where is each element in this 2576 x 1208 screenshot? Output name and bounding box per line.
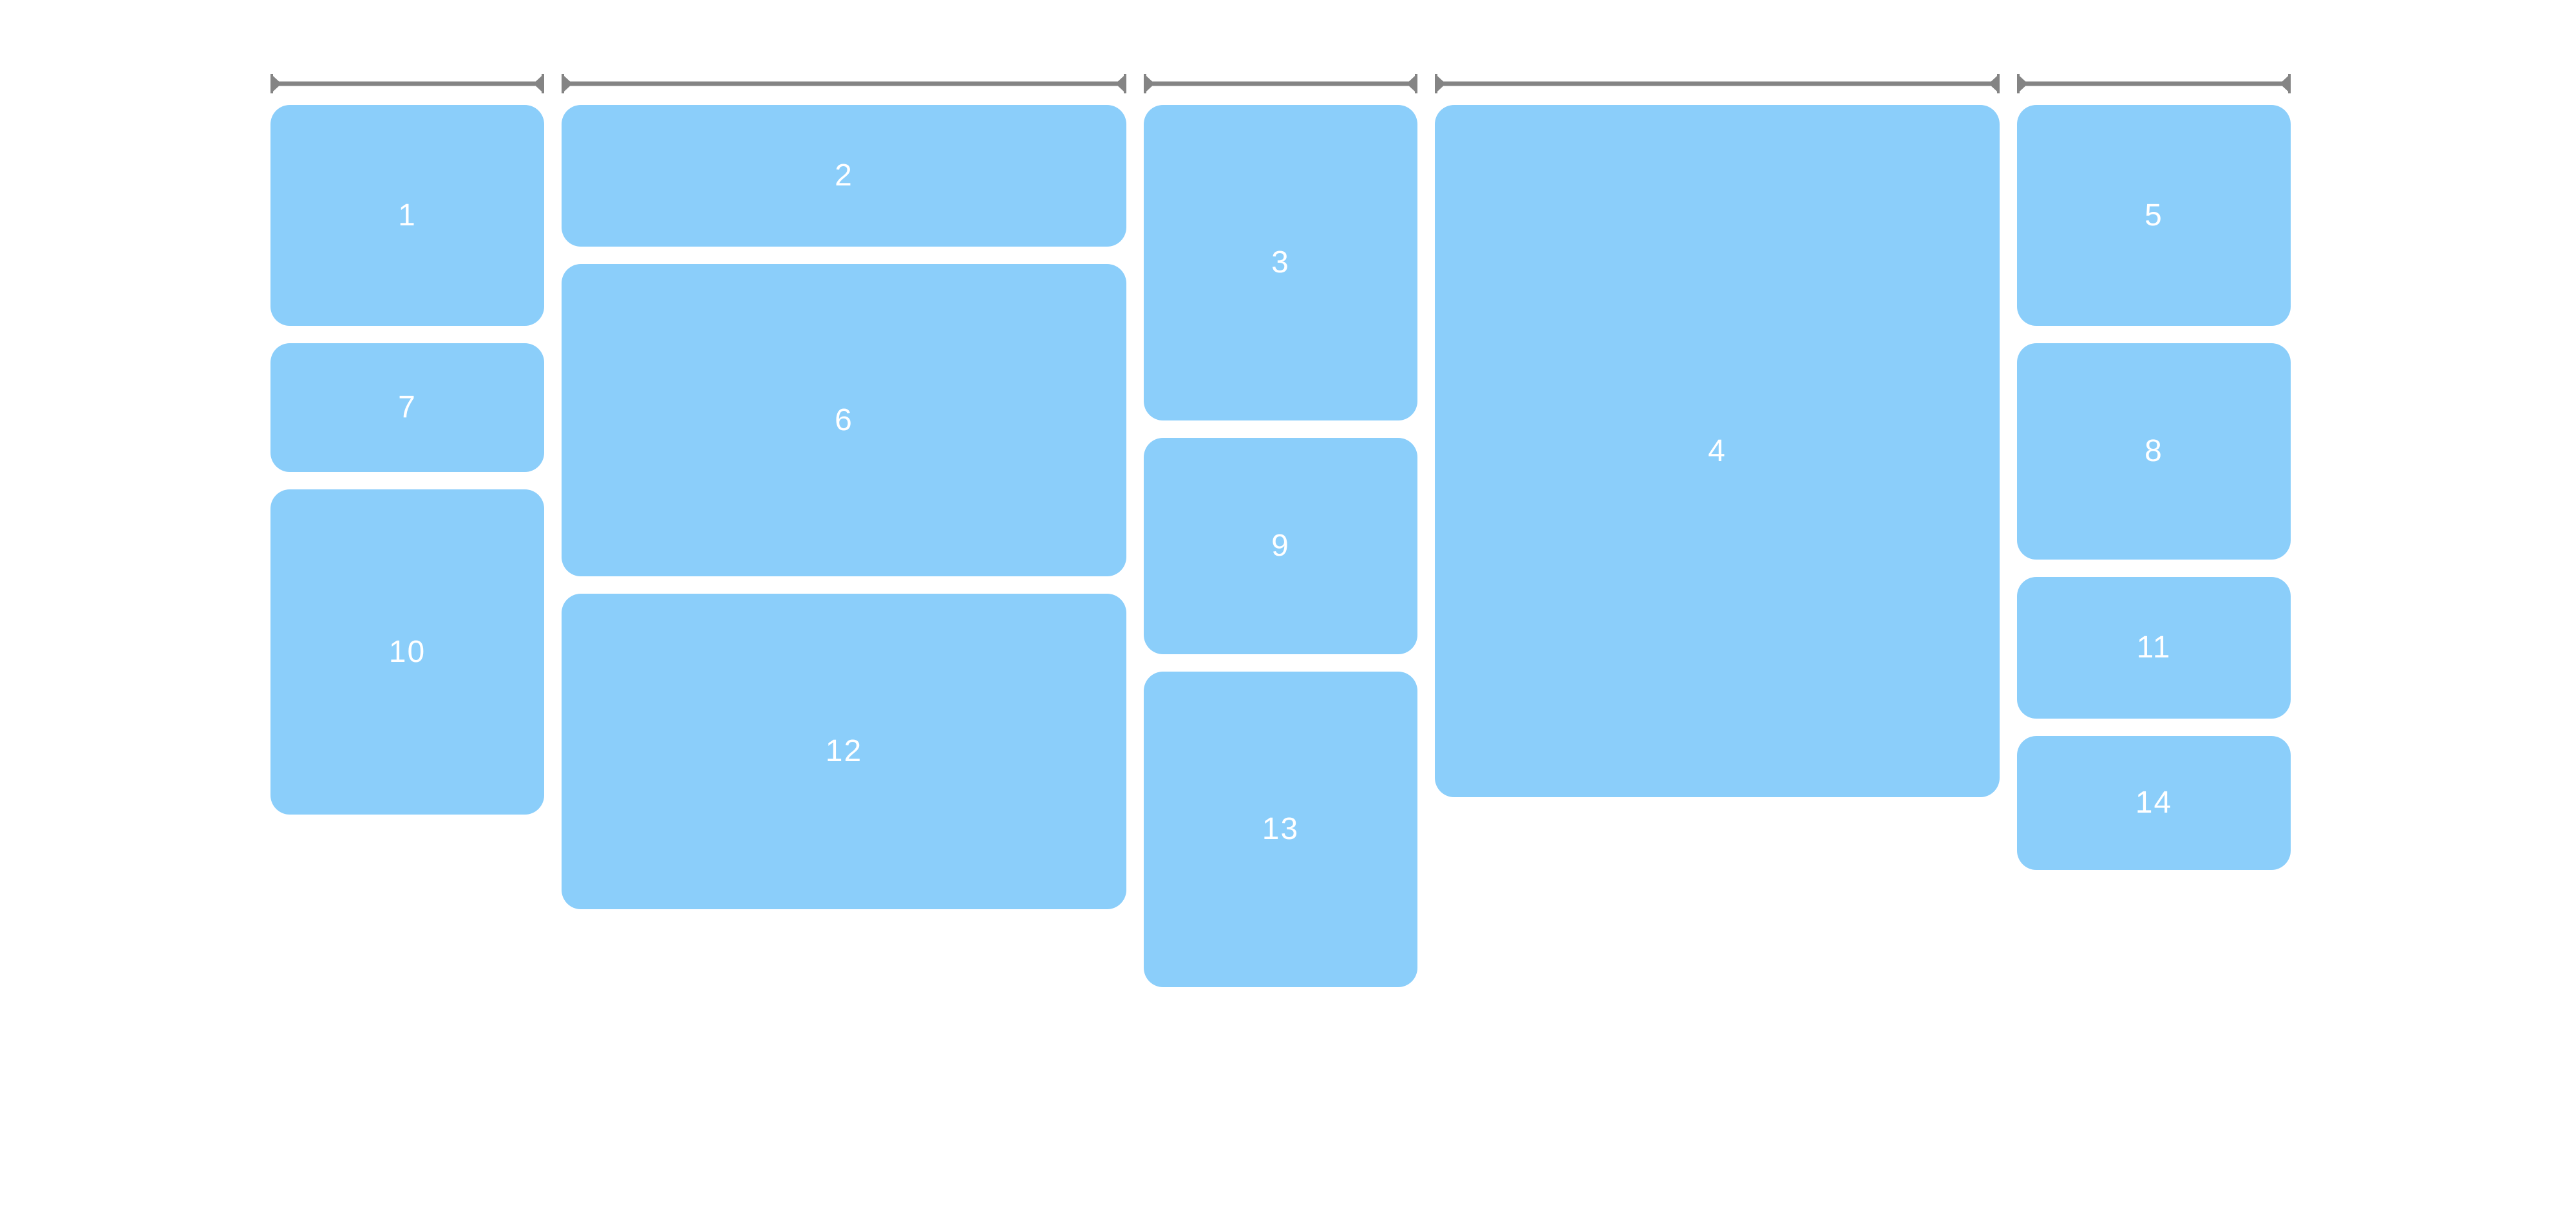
item-number: 6 bbox=[835, 405, 853, 436]
column-item-stack: 4 bbox=[1435, 105, 2000, 797]
item-number: 3 bbox=[1271, 247, 1290, 278]
right-end-tick bbox=[1124, 74, 1126, 93]
masonry-item-6: 6 bbox=[562, 264, 1126, 576]
masonry-layout-diagram: 1710261239134581114 bbox=[0, 0, 2576, 1208]
item-number: 13 bbox=[1262, 814, 1299, 845]
left-arrowhead-icon bbox=[1437, 76, 1446, 91]
right-arrowhead-icon bbox=[2280, 76, 2288, 91]
masonry-column-2: 2612 bbox=[562, 73, 1126, 909]
column-item-stack: 581114 bbox=[2017, 105, 2291, 870]
column-width-ruler bbox=[1435, 73, 2000, 94]
masonry-item-13: 13 bbox=[1144, 672, 1417, 987]
item-number: 10 bbox=[389, 637, 426, 668]
masonry-item-2: 2 bbox=[562, 105, 1126, 247]
masonry-item-5: 5 bbox=[2017, 105, 2291, 326]
masonry-item-8: 8 bbox=[2017, 343, 2291, 560]
masonry-item-3: 3 bbox=[1144, 105, 1417, 420]
column-width-ruler bbox=[2017, 73, 2291, 94]
left-arrowhead-icon bbox=[273, 76, 281, 91]
masonry-item-11: 11 bbox=[2017, 577, 2291, 719]
item-number: 8 bbox=[2145, 436, 2163, 467]
right-arrowhead-icon bbox=[1989, 76, 1997, 91]
masonry-item-1: 1 bbox=[270, 105, 544, 326]
left-arrowhead-icon bbox=[1146, 76, 1155, 91]
right-arrowhead-icon bbox=[1406, 76, 1415, 91]
right-arrowhead-icon bbox=[1115, 76, 1124, 91]
ruler-line bbox=[1146, 82, 1416, 86]
item-number: 9 bbox=[1271, 531, 1290, 562]
column-width-ruler bbox=[270, 73, 544, 94]
masonry-column-3: 3913 bbox=[1144, 73, 1417, 987]
column-item-stack: 3913 bbox=[1144, 105, 1417, 987]
right-arrowhead-icon bbox=[533, 76, 542, 91]
left-end-tick bbox=[1144, 74, 1146, 93]
item-number: 2 bbox=[835, 160, 853, 191]
column-item-stack: 2612 bbox=[562, 105, 1126, 909]
right-end-tick bbox=[542, 74, 544, 93]
masonry-column-5: 581114 bbox=[2017, 73, 2291, 870]
item-number: 12 bbox=[826, 736, 862, 767]
masonry-item-7: 7 bbox=[270, 343, 544, 472]
ruler-line bbox=[272, 82, 542, 86]
column-item-stack: 1710 bbox=[270, 105, 544, 815]
item-number: 11 bbox=[2137, 632, 2172, 663]
left-end-tick bbox=[562, 74, 564, 93]
left-end-tick bbox=[270, 74, 273, 93]
left-arrowhead-icon bbox=[564, 76, 573, 91]
masonry-item-4: 4 bbox=[1435, 105, 2000, 797]
masonry-column-1: 1710 bbox=[270, 73, 544, 815]
masonry-item-12: 12 bbox=[562, 594, 1126, 909]
item-number: 14 bbox=[2136, 788, 2172, 818]
masonry-item-10: 10 bbox=[270, 489, 544, 815]
column-width-ruler bbox=[1144, 73, 1417, 94]
masonry-column-4: 4 bbox=[1435, 73, 2000, 797]
ruler-line bbox=[1437, 82, 1998, 86]
right-end-tick bbox=[2288, 74, 2291, 93]
left-end-tick bbox=[2017, 74, 2020, 93]
right-end-tick bbox=[1415, 74, 1417, 93]
left-arrowhead-icon bbox=[2020, 76, 2028, 91]
left-end-tick bbox=[1435, 74, 1437, 93]
item-number: 7 bbox=[398, 392, 417, 423]
item-number: 4 bbox=[1708, 436, 1727, 467]
item-number: 5 bbox=[2145, 200, 2163, 231]
masonry-item-14: 14 bbox=[2017, 736, 2291, 870]
ruler-line bbox=[2019, 82, 2289, 86]
right-end-tick bbox=[1997, 74, 2000, 93]
column-width-ruler bbox=[562, 73, 1126, 94]
ruler-line bbox=[563, 82, 1124, 86]
item-number: 1 bbox=[398, 200, 417, 231]
masonry-item-9: 9 bbox=[1144, 438, 1417, 654]
